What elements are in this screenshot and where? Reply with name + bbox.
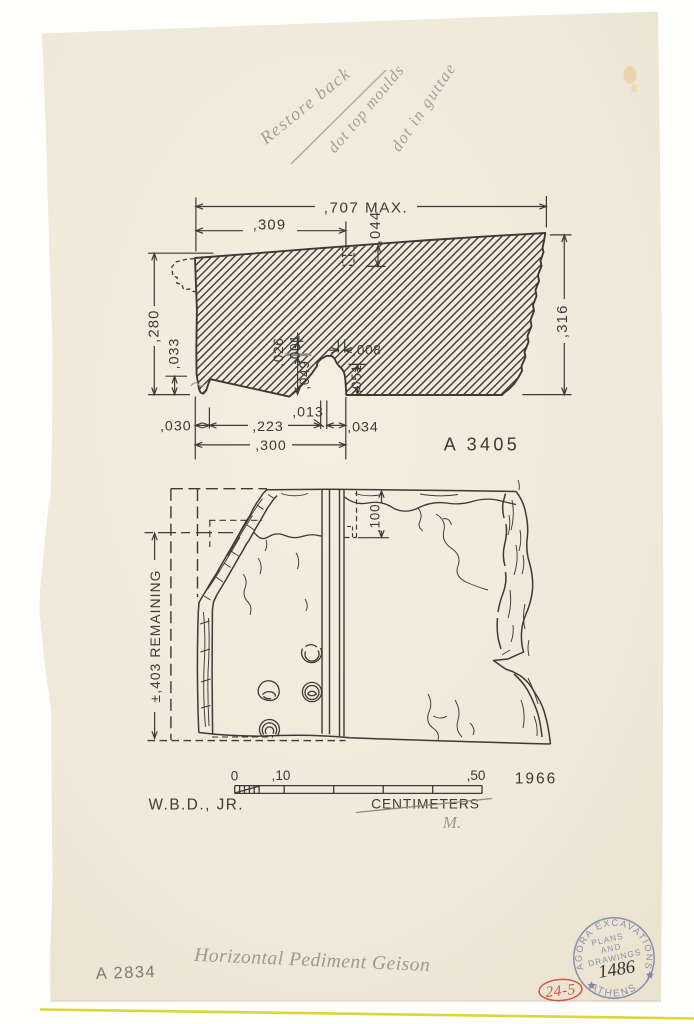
svg-text:,033: ,033 — [166, 338, 182, 370]
svg-text:,50: ,50 — [467, 768, 486, 783]
svg-text:,300: ,300 — [255, 438, 287, 454]
svg-text:,316: ,316 — [555, 304, 571, 338]
svg-text:,280: ,280 — [147, 309, 163, 343]
svg-text:±,403 REMAINING: ±,403 REMAINING — [148, 570, 163, 703]
svg-text:,008: ,008 — [352, 343, 381, 358]
svg-text:,049: ,049 — [297, 360, 312, 389]
svg-text:,707 MAX.: ,707 MAX. — [324, 200, 408, 217]
svg-text:,013: ,013 — [292, 405, 324, 421]
svg-text:,10: ,10 — [272, 768, 291, 783]
svg-text:,034: ,034 — [347, 420, 379, 436]
svg-text:,044: ,044 — [368, 211, 384, 245]
svg-text:24-5: 24-5 — [545, 981, 577, 1001]
svg-text:,001: ,001 — [288, 334, 303, 363]
svg-text:A 3405: A 3405 — [444, 435, 520, 455]
svg-text:,051: ,051 — [349, 364, 364, 393]
svg-text:A 2834: A 2834 — [96, 963, 157, 983]
svg-text:,100: ,100 — [368, 504, 383, 533]
svg-text:M.: M. — [442, 813, 461, 832]
svg-text:,030: ,030 — [160, 419, 192, 435]
svg-text:,309: ,309 — [253, 218, 287, 234]
svg-text:,223: ,223 — [252, 419, 284, 435]
svg-text:1966: 1966 — [515, 771, 557, 788]
svg-text:0: 0 — [231, 769, 239, 784]
svg-text:W.B.D., JR.: W.B.D., JR. — [149, 797, 245, 814]
svg-text:,026: ,026 — [271, 337, 286, 366]
